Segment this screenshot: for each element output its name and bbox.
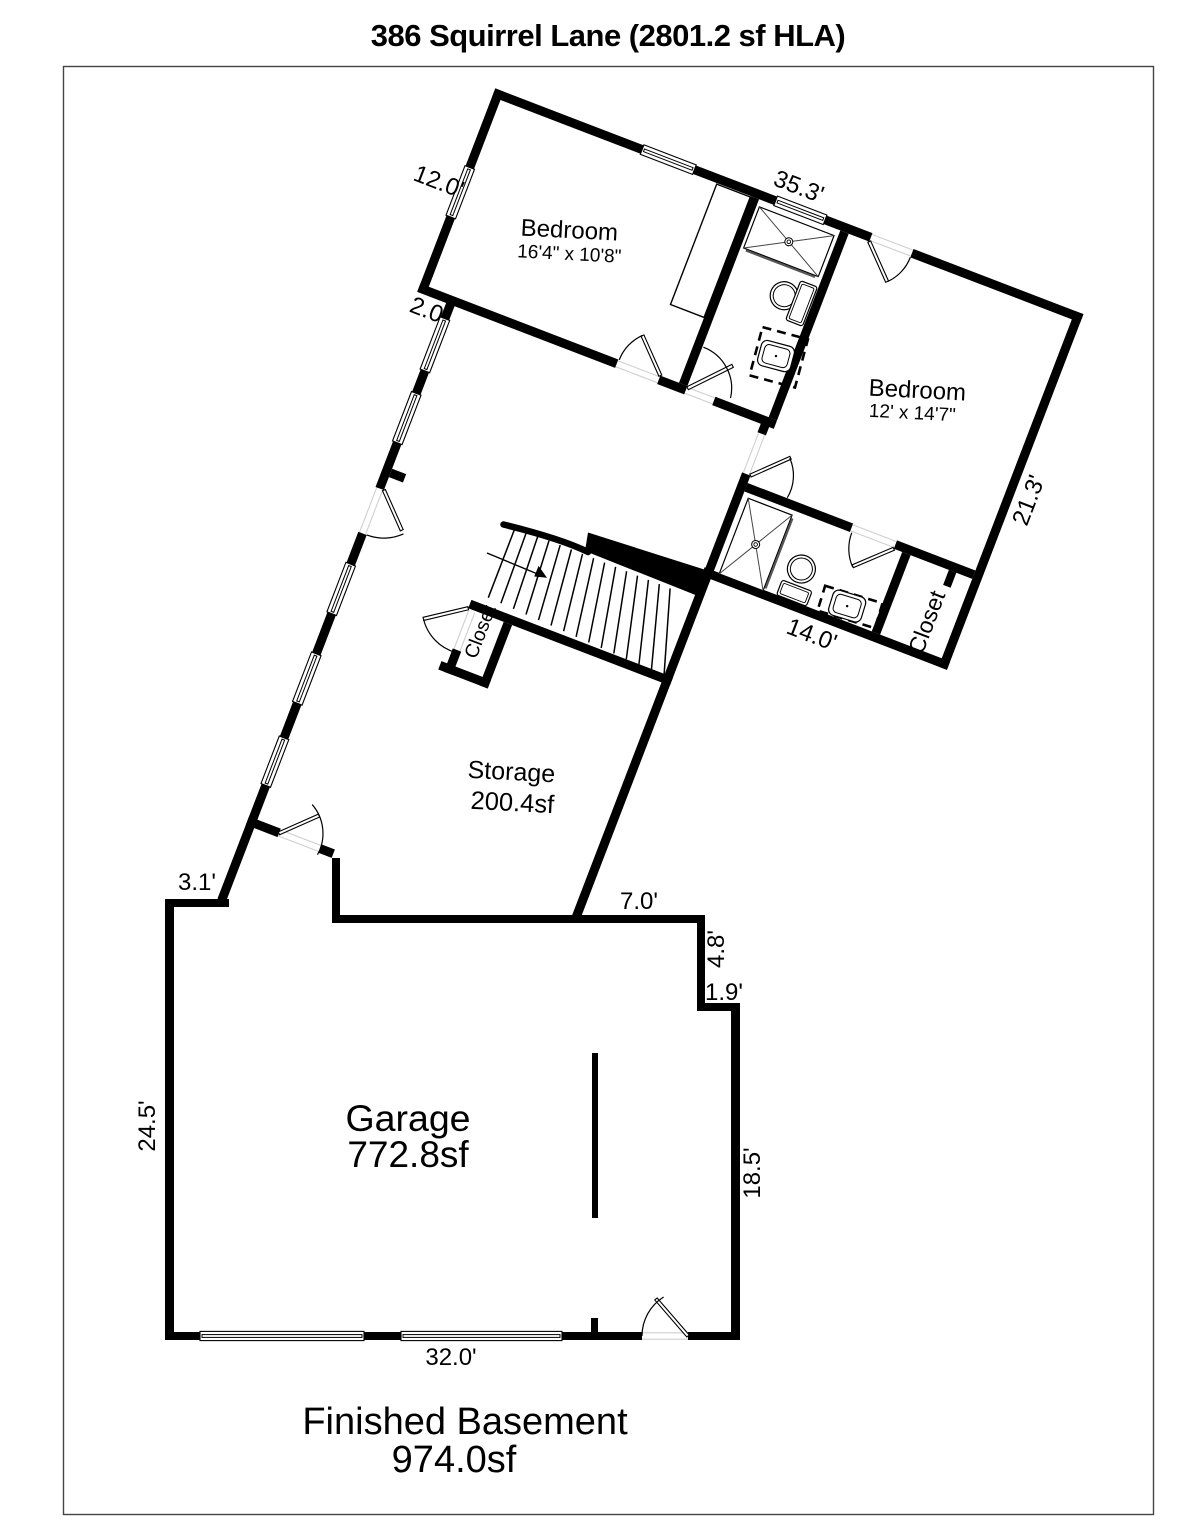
svg-text:974.0sf: 974.0sf [392,1439,517,1481]
svg-text:7.0': 7.0' [620,888,658,915]
svg-text:386 Squirrel Lane (2801.2 sf H: 386 Squirrel Lane (2801.2 sf HLA) [371,18,846,53]
svg-text:18.5': 18.5' [739,1147,766,1198]
svg-text:4.8': 4.8' [703,930,730,968]
svg-text:Storage: Storage [467,756,556,789]
svg-text:Finished Basement: Finished Basement [302,1401,628,1443]
svg-text:200.4sf: 200.4sf [470,787,556,819]
svg-text:3.1': 3.1' [178,869,216,896]
svg-text:772.8sf: 772.8sf [347,1134,469,1175]
svg-text:32.0': 32.0' [425,1344,476,1371]
svg-text:1.9': 1.9' [705,979,743,1006]
svg-text:24.5': 24.5' [134,1100,161,1151]
svg-text:Garage: Garage [345,1097,470,1139]
